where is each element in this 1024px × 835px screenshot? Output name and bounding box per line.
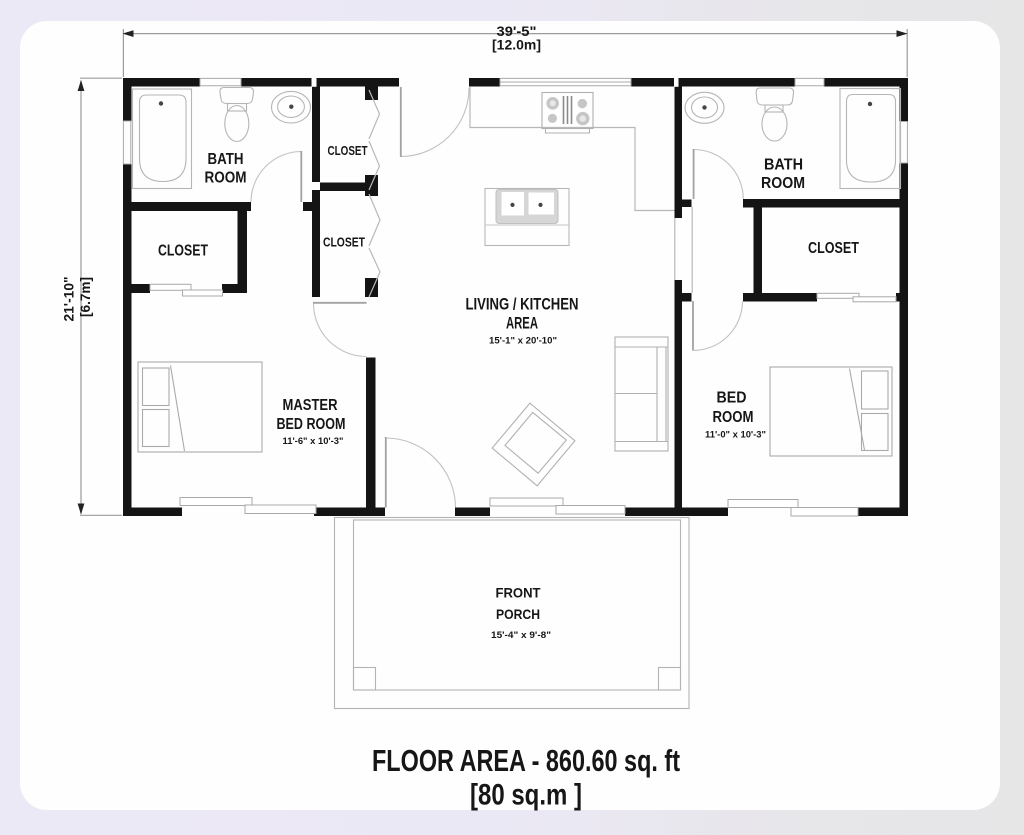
- svg-text:FLOOR AREA - 860.60 sq. ft: FLOOR AREA - 860.60 sq. ft: [372, 743, 680, 778]
- svg-text:[6.7m]: [6.7m]: [78, 277, 93, 317]
- svg-text:15'-1" x 20'-10": 15'-1" x 20'-10": [489, 336, 557, 347]
- svg-text:AREA: AREA: [506, 315, 538, 333]
- svg-text:15'-4" x 9'-8": 15'-4" x 9'-8": [491, 630, 551, 641]
- svg-text:CLOSET: CLOSET: [808, 240, 859, 257]
- svg-text:CLOSET: CLOSET: [328, 144, 368, 158]
- svg-text:11'-0" x 10'-3": 11'-0" x 10'-3": [705, 430, 766, 441]
- svg-text:CLOSET: CLOSET: [323, 234, 365, 249]
- svg-text:PORCH: PORCH: [496, 606, 540, 622]
- svg-text:MASTER: MASTER: [283, 397, 338, 414]
- svg-text:BATH: BATH: [764, 156, 803, 173]
- svg-text:BED ROOM: BED ROOM: [277, 416, 346, 433]
- svg-text:[80 sq.m ]: [80 sq.m ]: [470, 779, 582, 812]
- svg-text:11'-6" x 10'-3": 11'-6" x 10'-3": [283, 436, 344, 447]
- svg-text:ROOM: ROOM: [761, 175, 805, 192]
- svg-text:FRONT: FRONT: [496, 585, 541, 601]
- svg-text:CLOSET: CLOSET: [158, 243, 208, 260]
- svg-text:ROOM: ROOM: [205, 169, 247, 186]
- svg-text:21'-10": 21'-10": [62, 277, 77, 322]
- svg-text:BED: BED: [717, 389, 747, 406]
- svg-text:[12.0m]: [12.0m]: [492, 37, 541, 52]
- svg-text:BATH: BATH: [208, 151, 244, 168]
- svg-text:ROOM: ROOM: [713, 409, 754, 426]
- svg-text:LIVING / KITCHEN: LIVING / KITCHEN: [466, 296, 579, 314]
